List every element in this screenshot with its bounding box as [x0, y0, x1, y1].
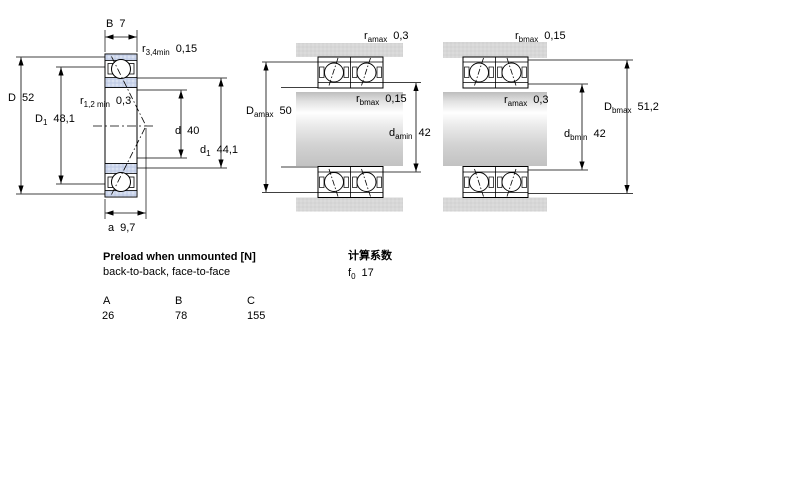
preload-col-C: C	[247, 295, 255, 308]
dim-D1-label: D148,1	[35, 113, 75, 126]
dim-a-label: a9,7	[108, 222, 135, 235]
calc-factors-title: 计算系数	[348, 250, 392, 263]
dim-ramax-top-label: ramax0,3	[364, 30, 409, 43]
bearing-datasheet-page: B7 r3,4min0,15 D52 D148,1 r1,2 min0,3 d4…	[0, 0, 800, 500]
dim-r12min-label: r1,2 min0,3	[80, 95, 131, 108]
dim-d1-label: d144,1	[200, 144, 238, 157]
dim-d-label: d40	[175, 125, 199, 138]
preload-val-B: 78	[175, 310, 187, 323]
preload-col-A: A	[103, 295, 110, 308]
dim-Dbmax-label: Dbmax51,2	[604, 101, 659, 114]
dim-D-label: D52	[8, 92, 34, 105]
dim-rbmax-mid-label: rbmax0,15	[356, 93, 407, 106]
dim-rbmax-top-label: rbmax0,15	[515, 30, 566, 43]
preload-val-A: 26	[102, 310, 114, 323]
technical-drawing	[0, 0, 800, 500]
preload-col-B: B	[175, 295, 182, 308]
dim-damin-label: damin42	[389, 127, 431, 140]
dim-r34min-label: r3,4min0,15	[142, 43, 197, 56]
calc-f0-label: f017	[348, 267, 374, 280]
face-to-face-figure	[443, 42, 633, 212]
preload-title: Preload when unmounted [N]	[103, 251, 256, 264]
preload-subtitle: back-to-back, face-to-face	[103, 266, 230, 279]
dim-B-label: B7	[106, 18, 125, 31]
preload-val-C: 155	[247, 310, 265, 323]
dim-dbmin-label: dbmin42	[564, 128, 606, 141]
dim-Damax-label: Damax50	[246, 105, 292, 118]
dim-ramax-mid-label: ramax0,3	[504, 94, 549, 107]
